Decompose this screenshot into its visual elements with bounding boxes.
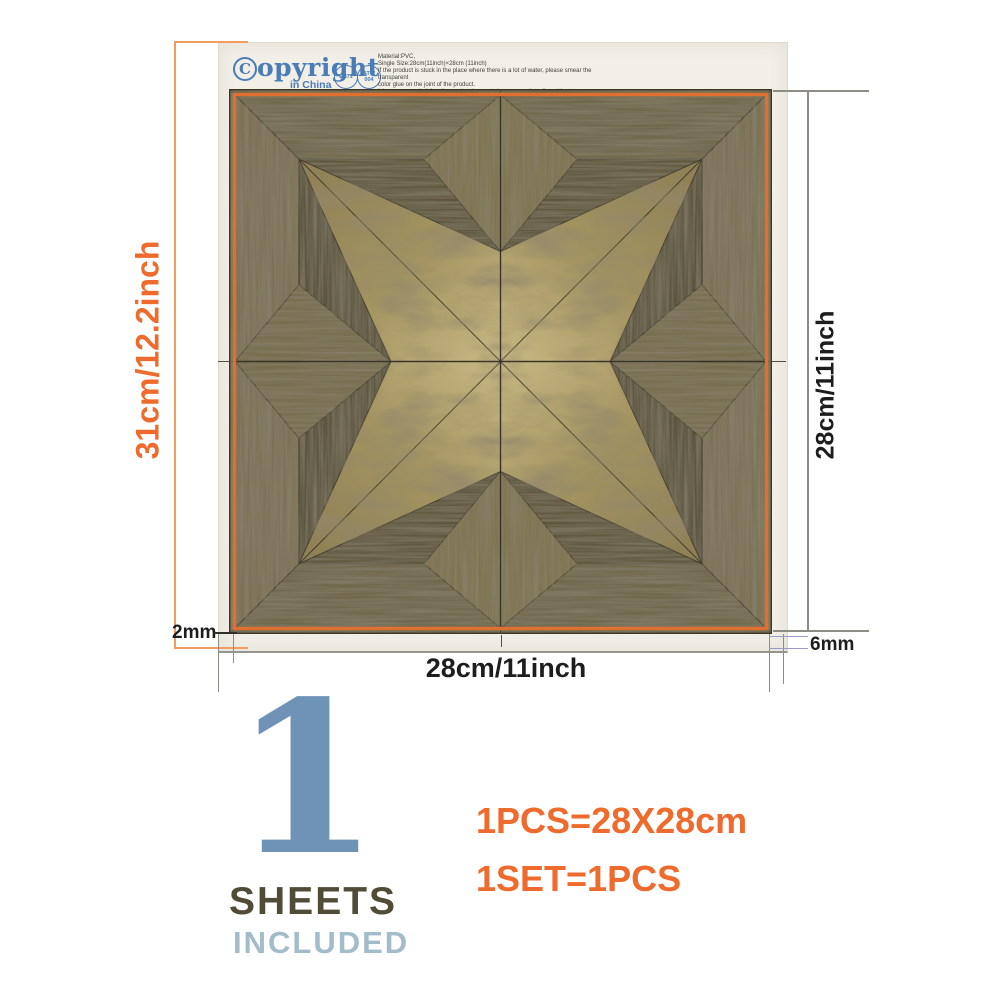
margin-left-leader-line [214,632,237,634]
atw-badge-line2: 004 [364,77,373,83]
margin-left-label: 2mm [172,622,216,644]
parquet-tile-graphic [229,89,772,634]
en71-badge-icon: EN71 [334,65,358,89]
margin-right-bracket-top [769,636,808,637]
copyright-logo-icon: C [233,57,257,81]
dim-right-label: 28cm/11inch [812,311,841,460]
info-line-size: Single Size:28cm(11inch)×28cm (11inch) [378,61,608,68]
dim-left-tick-bottom [174,647,248,649]
dim-bottom-tick-outer-right [783,634,784,684]
info-line-material: Material:PVC, [378,54,608,61]
dim-right-line [807,90,809,631]
dim-left-tick-top [174,41,248,43]
dim-bottom-tick-inner-right [769,634,770,692]
dim-right-tick-top [773,90,869,92]
dim-bottom-label: 28cm/11inch [426,653,587,684]
sheet-count: 1 [233,684,379,873]
info-line-warning-1: If the product is stuck in the place whe… [378,68,608,82]
dim-right-tick-bottom [773,630,869,632]
spec-line-pcs: 1PCS=28X28cm [476,800,747,842]
center-tick-bottom [501,635,502,647]
product-dimension-graphic: C opyright in China EN71 ATW 004 Materia… [0,0,1001,1001]
margin-right-bracket-bottom [769,648,808,649]
spec-line-set: 1SET=1PCS [476,858,681,900]
included-label: INCLUDED [233,925,409,961]
en71-badge-label: EN71 [339,74,353,80]
center-tick-left [218,361,231,362]
dim-left-label: 31cm/12.2inch [130,241,167,460]
dim-left-line [174,42,176,648]
sheets-label: SHEETS [229,880,397,924]
dim-bottom-tick-outer-left [218,634,219,692]
margin-right-label: 6mm [810,634,854,656]
center-tick-right [770,361,786,362]
